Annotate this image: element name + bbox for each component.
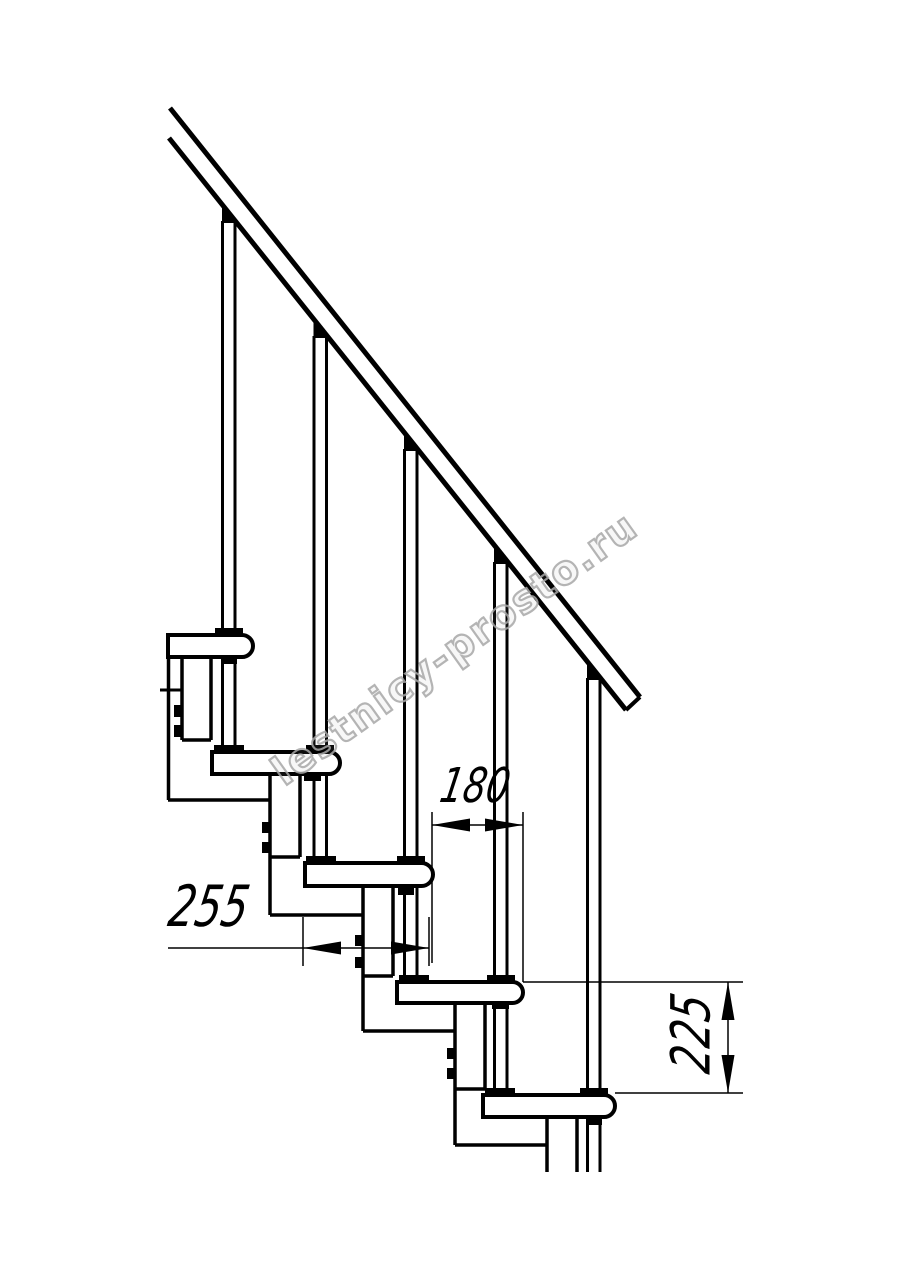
fastener-20 bbox=[447, 1048, 455, 1059]
dim-arrowhead-right-3 bbox=[391, 942, 429, 955]
dim-arrowhead-right-1 bbox=[485, 819, 523, 832]
dimension-label-225: 225 bbox=[666, 1004, 718, 1077]
fastener-19 bbox=[355, 957, 363, 968]
fastener-16 bbox=[262, 822, 270, 833]
dimension-label-180: 180 bbox=[436, 758, 515, 814]
dim-arrowhead-left-2 bbox=[303, 942, 341, 955]
dimension-label-255: 255 bbox=[164, 874, 254, 940]
handrail-line-1 bbox=[169, 138, 626, 710]
tread-5 bbox=[483, 1095, 615, 1117]
dim-arrowhead-left-0 bbox=[432, 819, 470, 832]
fastener-7 bbox=[398, 887, 414, 895]
tread-3 bbox=[305, 863, 433, 886]
staircase-drawing-canvas: lestnicy-prosto.ru 180 255 225 bbox=[0, 0, 914, 1280]
fastener-21 bbox=[447, 1068, 455, 1079]
fastener-18 bbox=[355, 935, 363, 946]
tread-4 bbox=[397, 982, 523, 1003]
fastener-17 bbox=[262, 842, 270, 853]
handrail-line-2 bbox=[626, 697, 640, 710]
fastener-15 bbox=[174, 725, 182, 737]
fastener-14 bbox=[174, 705, 182, 717]
dim-arrowhead-down-5 bbox=[722, 1055, 735, 1093]
tread-1 bbox=[168, 635, 253, 657]
dim-arrowhead-up-4 bbox=[722, 982, 735, 1020]
